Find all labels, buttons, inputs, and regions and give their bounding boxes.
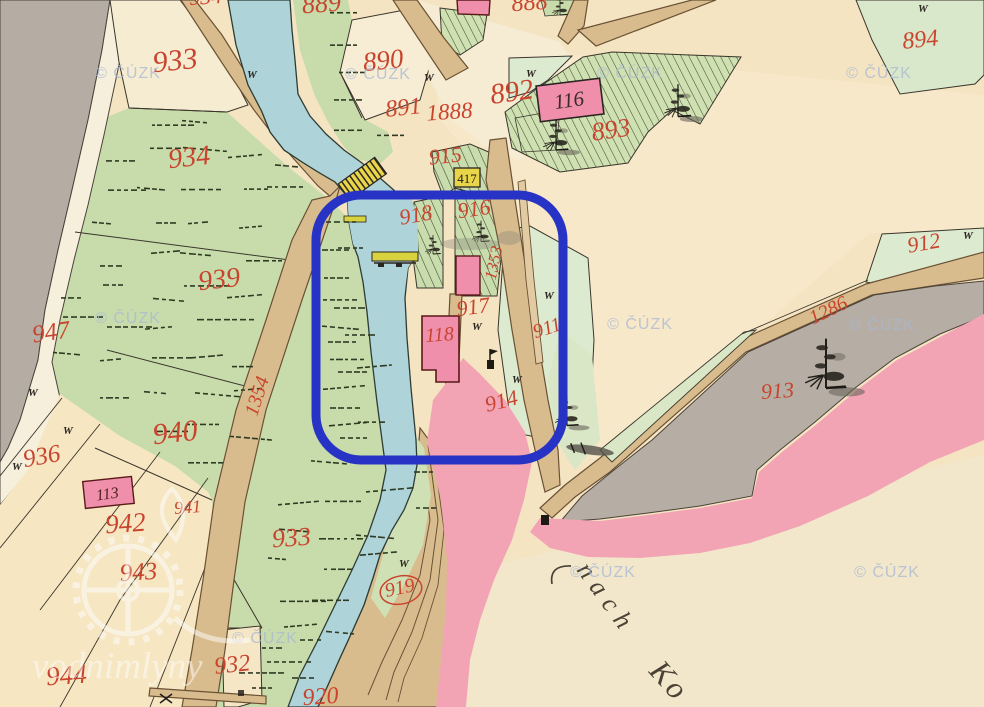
svg-text:892: 892 (488, 73, 536, 111)
svg-text:vodnimlyny: vodnimlyny (32, 646, 203, 687)
svg-text:W: W (472, 321, 483, 333)
svg-text:W: W (63, 425, 74, 437)
svg-text:© ČÚZK: © ČÚZK (95, 308, 161, 327)
svg-text:116: 116 (553, 86, 586, 114)
svg-text:920: 920 (302, 683, 340, 707)
svg-text:893: 893 (589, 113, 632, 147)
svg-text:W: W (544, 290, 555, 302)
svg-text:889: 889 (301, 0, 342, 19)
svg-text:942: 942 (104, 507, 146, 540)
svg-text:913: 913 (760, 377, 795, 404)
svg-text:113: 113 (95, 485, 120, 505)
svg-text:943: 943 (119, 558, 158, 588)
svg-text:© ČÚZK: © ČÚZK (345, 64, 411, 83)
svg-text:915: 915 (427, 141, 462, 169)
svg-text:940: 940 (151, 414, 199, 452)
svg-text:© ČÚZK: © ČÚZK (597, 63, 663, 82)
svg-text:932: 932 (213, 650, 252, 680)
svg-text:W: W (247, 69, 258, 81)
svg-text:939: 939 (197, 262, 242, 297)
svg-text:917: 917 (455, 292, 492, 321)
svg-text:W: W (918, 3, 929, 15)
svg-text:891: 891 (384, 93, 423, 123)
svg-text:© ČÚZK: © ČÚZK (849, 315, 915, 334)
svg-text:W: W (12, 461, 23, 473)
svg-text:© ČÚZK: © ČÚZK (570, 562, 636, 581)
svg-text:947: 947 (31, 316, 73, 348)
svg-text:© ČÚZK: © ČÚZK (95, 63, 161, 82)
svg-text:© ČÚZK: © ČÚZK (854, 562, 920, 581)
svg-text:W: W (28, 387, 39, 399)
svg-text:© ČÚZK: © ČÚZK (607, 314, 673, 333)
svg-text:© ČÚZK: © ČÚZK (232, 628, 298, 647)
svg-text:W: W (963, 230, 974, 242)
svg-text:888: 888 (511, 0, 549, 17)
svg-text:W: W (399, 558, 410, 570)
svg-text:934: 934 (167, 140, 212, 175)
svg-text:1888: 1888 (426, 97, 474, 125)
svg-text:933: 933 (271, 522, 312, 554)
svg-text:118: 118 (425, 323, 455, 347)
svg-text:W: W (424, 72, 435, 84)
svg-text:417: 417 (457, 171, 477, 186)
svg-text:© ČÚZK: © ČÚZK (846, 63, 912, 82)
svg-text:894: 894 (901, 25, 940, 55)
